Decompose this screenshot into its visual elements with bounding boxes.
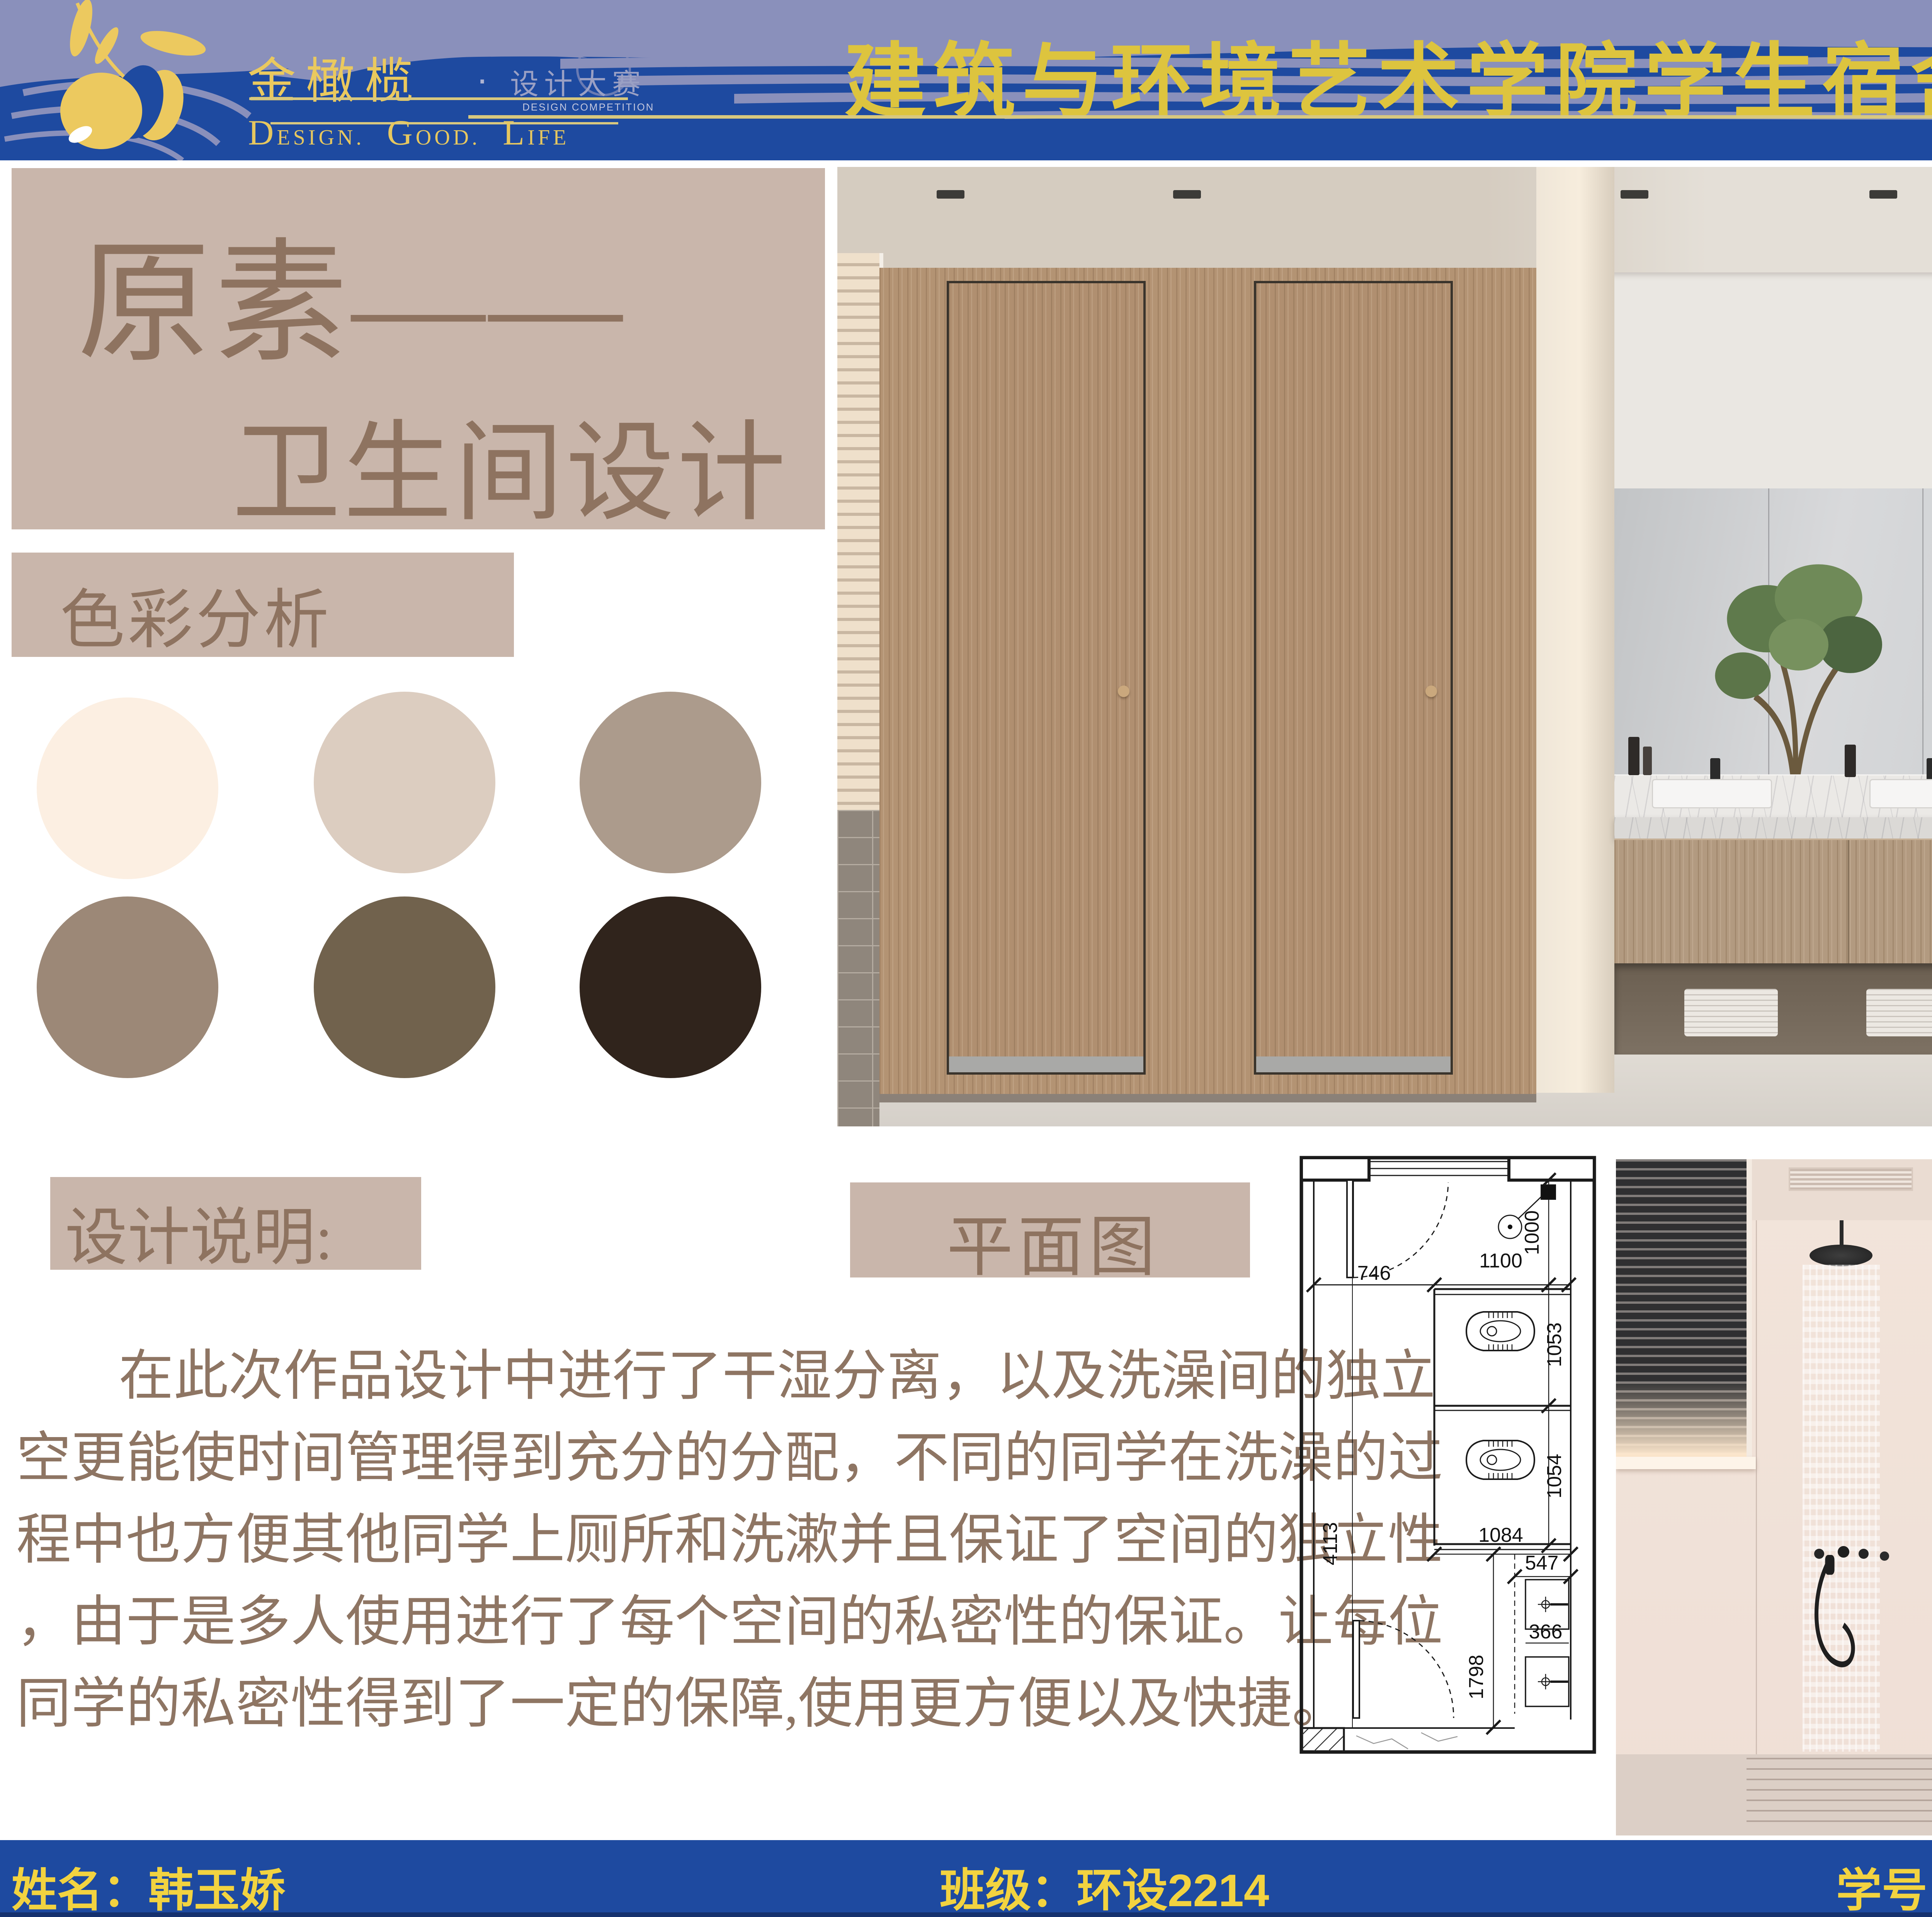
sink-basin <box>1869 779 1932 808</box>
downlight-icon <box>1621 190 1648 199</box>
palette-swatch <box>580 692 761 873</box>
poster-board: 金橄榄 · 设计大赛 DESIGN COMPETITION DESIGN. GO… <box>0 0 1932 1917</box>
plan-dim-547: 547 <box>1525 1552 1559 1574</box>
project-title-line2: 卫生间设计 <box>232 384 788 542</box>
color-analysis-heading-box: 色彩分析 <box>12 553 514 657</box>
windowsill <box>1616 1457 1756 1469</box>
header-banner: 金橄榄 · 设计大赛 DESIGN COMPETITION DESIGN. GO… <box>0 0 1932 160</box>
plan-dim-1054: 1054 <box>1543 1454 1566 1499</box>
tagline-rest: OOD. <box>416 126 480 150</box>
logo-dot: · <box>476 58 488 100</box>
cabinet-divider <box>1848 840 1849 965</box>
wall-corner-line <box>1756 1220 1757 1755</box>
tagline-rest: ESIGN. <box>277 126 364 150</box>
door-kickplate <box>949 1056 1143 1072</box>
footer-class: 班级：环设2214 <box>940 1853 1269 1917</box>
plan-dim-1053: 1053 <box>1543 1322 1566 1367</box>
tagline-rest: IFE <box>527 126 569 150</box>
logo-brand-text: 金橄榄 <box>247 42 423 112</box>
door-handle-icon <box>1425 685 1437 697</box>
towel-stack <box>1684 989 1777 1036</box>
tagline-cap: G <box>387 113 415 152</box>
palette-swatch <box>37 697 218 879</box>
logo-small-text: DESIGN COMPETITION <box>522 101 654 113</box>
note-line: 同学的私密性得到了一定的保障,使用更方便以及快捷。 <box>16 1663 1295 1745</box>
window-blinds <box>837 253 883 810</box>
door-handle-icon <box>1118 685 1129 697</box>
tagline-cap: D <box>248 113 277 152</box>
note-line: 在此次作品设计中进行了干湿分离，以及洗澡间的独立 <box>16 1335 1295 1417</box>
golden-olive-logo-icon <box>23 0 216 160</box>
floor-plan-heading: 平面图 <box>947 1192 1160 1289</box>
sink-basin <box>1652 779 1772 808</box>
project-title-line1: 原素—— <box>77 195 626 388</box>
tagline-cap: L <box>503 113 527 152</box>
plan-dim-366: 366 <box>1529 1621 1563 1643</box>
downlight-icon <box>937 190 964 199</box>
color-analysis-heading: 色彩分析 <box>60 567 332 661</box>
window-blinds <box>1616 1159 1752 1462</box>
faucet-icon <box>1927 758 1932 779</box>
plant-icon <box>1695 541 1894 800</box>
towel-stack <box>1866 989 1932 1036</box>
palette-swatch <box>580 896 761 1078</box>
footer-bar: 姓名：韩玉娇 班级：环设2214 学号：202240397 <box>0 1840 1932 1917</box>
downlight-icon <box>1869 190 1897 199</box>
faucet-icon <box>1710 758 1720 779</box>
plan-dim-1084: 1084 <box>1478 1524 1523 1546</box>
downlight-icon <box>1173 190 1201 199</box>
project-title-box: 原素—— 卫生间设计 <box>12 168 825 529</box>
note-line: 程中也方便其他同学上厕所和洗漱并且保证了空间的独立性 <box>16 1499 1295 1581</box>
render-main-bathroom <box>837 167 1932 1126</box>
wall-tiles <box>837 810 879 1126</box>
pillar <box>1536 167 1615 1093</box>
vanity-cabinet <box>1614 839 1932 965</box>
plan-dim-4113: 4113 <box>1319 1522 1342 1565</box>
stall-door <box>947 281 1146 1074</box>
shower-stem <box>1840 1220 1844 1247</box>
toiletry-bottle <box>1845 745 1856 777</box>
logo-underline <box>249 97 628 100</box>
footer-name: 姓名：韩玉娇 <box>12 1853 285 1917</box>
window-glow <box>1616 1379 1747 1457</box>
palette-swatch <box>37 896 218 1078</box>
drain-board <box>1747 1758 1932 1825</box>
plan-dim-1100: 1100 <box>1479 1250 1522 1272</box>
design-note-heading: 设计说明: <box>65 1186 333 1277</box>
plan-dim-1000: 1000 <box>1521 1210 1543 1255</box>
title-underline <box>468 115 1932 119</box>
footer-bottom-strip <box>0 1912 1932 1917</box>
stall-unit <box>879 268 1536 1102</box>
design-note-paragraph: 在此次作品设计中进行了干湿分离，以及洗澡间的独立 空更能使时间管理得到充分的分配… <box>16 1335 1295 1745</box>
open-shelf <box>1614 963 1932 1055</box>
plan-dim-746: 746 <box>1357 1262 1391 1284</box>
render-shower-room <box>1616 1159 1932 1835</box>
toiletry-bottle <box>1643 747 1652 775</box>
note-line: ，由于是多人使用进行了每个空间的私密性的保证。让每位 <box>16 1581 1295 1663</box>
hand-shower-hose-icon <box>1803 1555 1872 1684</box>
floor-plan-drawing: 746 1100 1000 1053 1054 1084 547 4113 17… <box>1298 1155 1598 1754</box>
floor-plan-heading-box: 平面图 <box>850 1182 1250 1277</box>
door-kickplate <box>1256 1056 1451 1072</box>
note-line: 空更能使时间管理得到充分的分配，不同的同学在洗澡的过 <box>16 1417 1295 1499</box>
logo-brand-suffix: 设计大赛 <box>510 61 646 102</box>
stall-door <box>1254 281 1453 1074</box>
ceiling-vent <box>1789 1167 1913 1191</box>
palette-swatch <box>314 896 495 1078</box>
stall-base-shadow <box>879 1094 1536 1102</box>
mirror-seam <box>1922 488 1923 774</box>
counter-front-edge <box>1614 817 1932 839</box>
footer-student-id: 学号：202240397 <box>1836 1853 1932 1917</box>
ceiling <box>837 167 1932 272</box>
design-note-heading-box: 设计说明: <box>50 1177 421 1270</box>
plan-dim-1798: 1798 <box>1465 1655 1488 1699</box>
toiletry-bottle <box>1628 737 1639 775</box>
shower-head-icon <box>1810 1245 1872 1266</box>
shower-valve-icon <box>1880 1551 1889 1561</box>
palette-swatch <box>314 692 495 873</box>
